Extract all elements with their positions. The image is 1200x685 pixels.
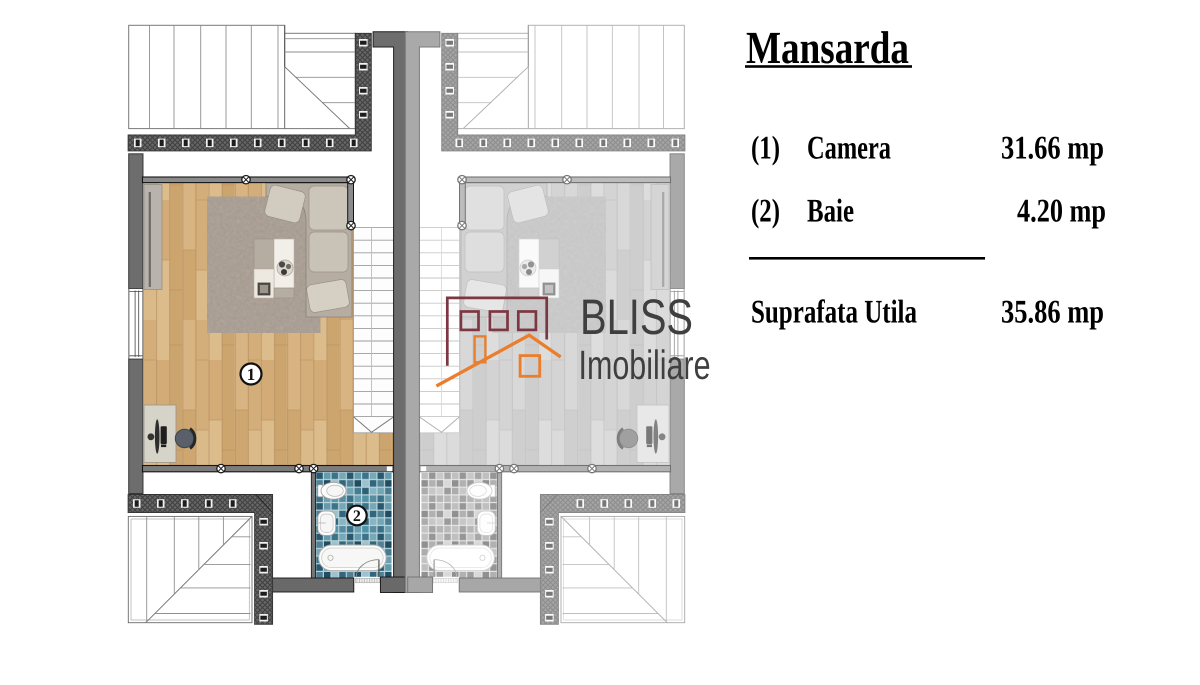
svg-text:(1): (1) <box>751 131 780 167</box>
svg-text:2: 2 <box>353 508 361 525</box>
svg-text:Baie: Baie <box>807 194 854 230</box>
svg-text:Suprafata Utila: Suprafata Utila <box>751 295 917 331</box>
svg-text:1: 1 <box>247 365 256 384</box>
svg-text:BLISS: BLISS <box>580 289 693 345</box>
svg-text:Imobiliare: Imobiliare <box>579 342 711 388</box>
svg-text:(2): (2) <box>751 194 780 230</box>
svg-text:31.66 mp: 31.66 mp <box>1001 131 1104 167</box>
svg-text:Camera: Camera <box>807 131 891 167</box>
svg-text:4.20 mp: 4.20 mp <box>1017 194 1106 230</box>
svg-text:35.86 mp: 35.86 mp <box>1001 295 1104 331</box>
